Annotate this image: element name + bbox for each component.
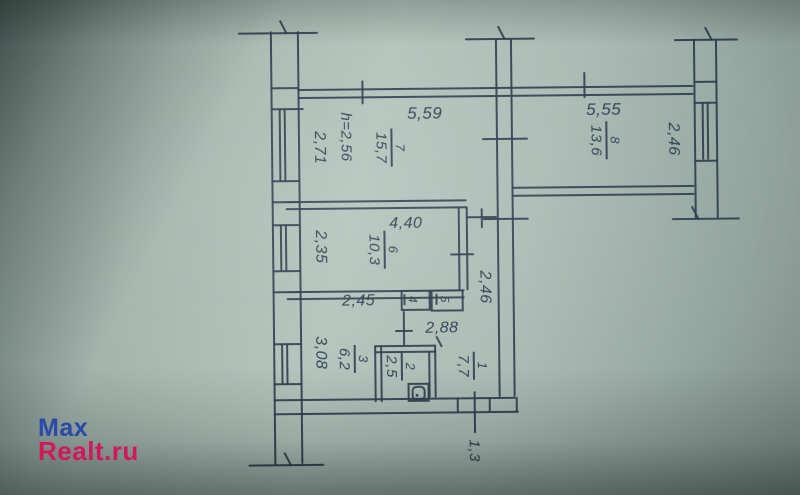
tick-top-left <box>238 32 318 35</box>
room8-area: 13,6 <box>588 122 607 159</box>
window-room7-cap-top <box>271 108 304 110</box>
wall-bath-top-1 <box>374 345 436 348</box>
wall-room6-right-2 <box>466 206 469 290</box>
room3-area: 6,2 <box>337 345 356 374</box>
tick-top-right <box>674 38 738 41</box>
room1-area: 7,7 <box>456 352 475 381</box>
tick-right-bottom <box>672 217 740 220</box>
window-room8-cap-top <box>694 102 718 104</box>
dim-corridor-length: 2,46 <box>476 268 492 306</box>
wall-top-tick-1 <box>361 80 363 104</box>
tick-top-middle <box>465 38 535 41</box>
wall-bath-left-1 <box>374 345 377 402</box>
floor-plan-photo: 5,59 5,55 4,40 2,45 2,88 h=2,56 2,71 2,3… <box>0 0 800 495</box>
label-room-1: 1 7,7 <box>456 351 489 381</box>
hall-dim-tick <box>395 330 413 332</box>
dim-room6-depth: 2,35 <box>312 228 328 266</box>
label-room-2: 2 2,5 <box>384 351 417 381</box>
watermark: Max Realt.ru <box>38 417 139 463</box>
wall-right-inner <box>693 39 697 219</box>
door-tick-room6-side <box>450 253 474 255</box>
room8-number: 8 <box>607 136 621 144</box>
label-room-7: 7 15,7 <box>373 128 406 166</box>
watermark-line2: Realt.ru <box>38 440 139 463</box>
room2-number: 2 <box>403 362 417 370</box>
note-ceiling-height: h=2,56 <box>338 106 354 168</box>
room7-area: 15,7 <box>373 129 392 166</box>
window-room3-glazing-2 <box>286 343 288 384</box>
room1-number: 1 <box>475 362 489 370</box>
label-room-4: 4 <box>403 294 418 305</box>
room6-number: 6 <box>386 246 400 254</box>
wall-room8-bottom-outer <box>511 185 694 189</box>
room7-number: 7 <box>393 144 407 152</box>
wall-left-joint-top <box>270 87 299 89</box>
dim-room8-width: 5,55 <box>582 101 626 118</box>
wall-bath-right-2 <box>434 345 437 398</box>
wall-top-tick-2 <box>583 72 585 98</box>
window-room8-glazing-1 <box>702 102 705 160</box>
hall-left-edge <box>403 311 405 346</box>
label-room-3: 3 6,2 <box>337 344 370 374</box>
room3-number: 3 <box>356 355 370 363</box>
dim-room7-depth: 2,71 <box>311 129 327 167</box>
wall-left-joint-bottom <box>274 399 303 401</box>
room6-area: 10,3 <box>366 231 385 268</box>
entry-jamb-left <box>457 397 459 412</box>
toilet-dot-icon <box>416 394 419 397</box>
door-tick-room7 <box>482 138 528 140</box>
door-tick-bath <box>435 336 442 348</box>
window-room6-glazing-1 <box>280 224 282 271</box>
tick-bottom-left <box>248 464 324 467</box>
dim-room3-width: 2,45 <box>339 293 379 309</box>
window-room7-glazing-2 <box>284 108 287 181</box>
dim-hall-width: 2,88 <box>420 320 464 336</box>
label-room-6: 6 10,3 <box>366 231 399 269</box>
wall-room7-room6-outer <box>286 199 467 203</box>
room2-area: 2,5 <box>384 352 403 381</box>
dim-room3-depth: 3,08 <box>312 334 328 372</box>
wall-bottom-right-end <box>516 397 518 413</box>
window-room8-glazing-2 <box>707 102 710 160</box>
wall-right-joint-top <box>693 81 717 83</box>
door-tick-room6-v <box>481 208 483 228</box>
wall-bottom-outer <box>274 411 519 416</box>
dim-room8-depth: 2,46 <box>665 120 681 158</box>
wall-room7-room6-inner <box>286 206 467 210</box>
dim-entry-width: 1,3 <box>467 437 482 465</box>
window-room8-cap-bottom <box>694 160 718 162</box>
window-room7-glazing-1 <box>279 108 282 181</box>
window-room3-glazing-1 <box>281 343 283 384</box>
window-room6-glazing-2 <box>285 224 287 271</box>
label-room-8: 8 13,6 <box>588 121 621 159</box>
wall-right-outer <box>715 39 719 219</box>
wall-room6-right-1 <box>458 206 461 290</box>
dim-room7-width: 5,59 <box>403 105 447 122</box>
entry-jamb-right <box>489 397 491 412</box>
entry-dim-line <box>474 391 476 433</box>
label-room-5: 5 <box>435 294 450 305</box>
wall-room8-bottom-inner <box>512 193 695 197</box>
